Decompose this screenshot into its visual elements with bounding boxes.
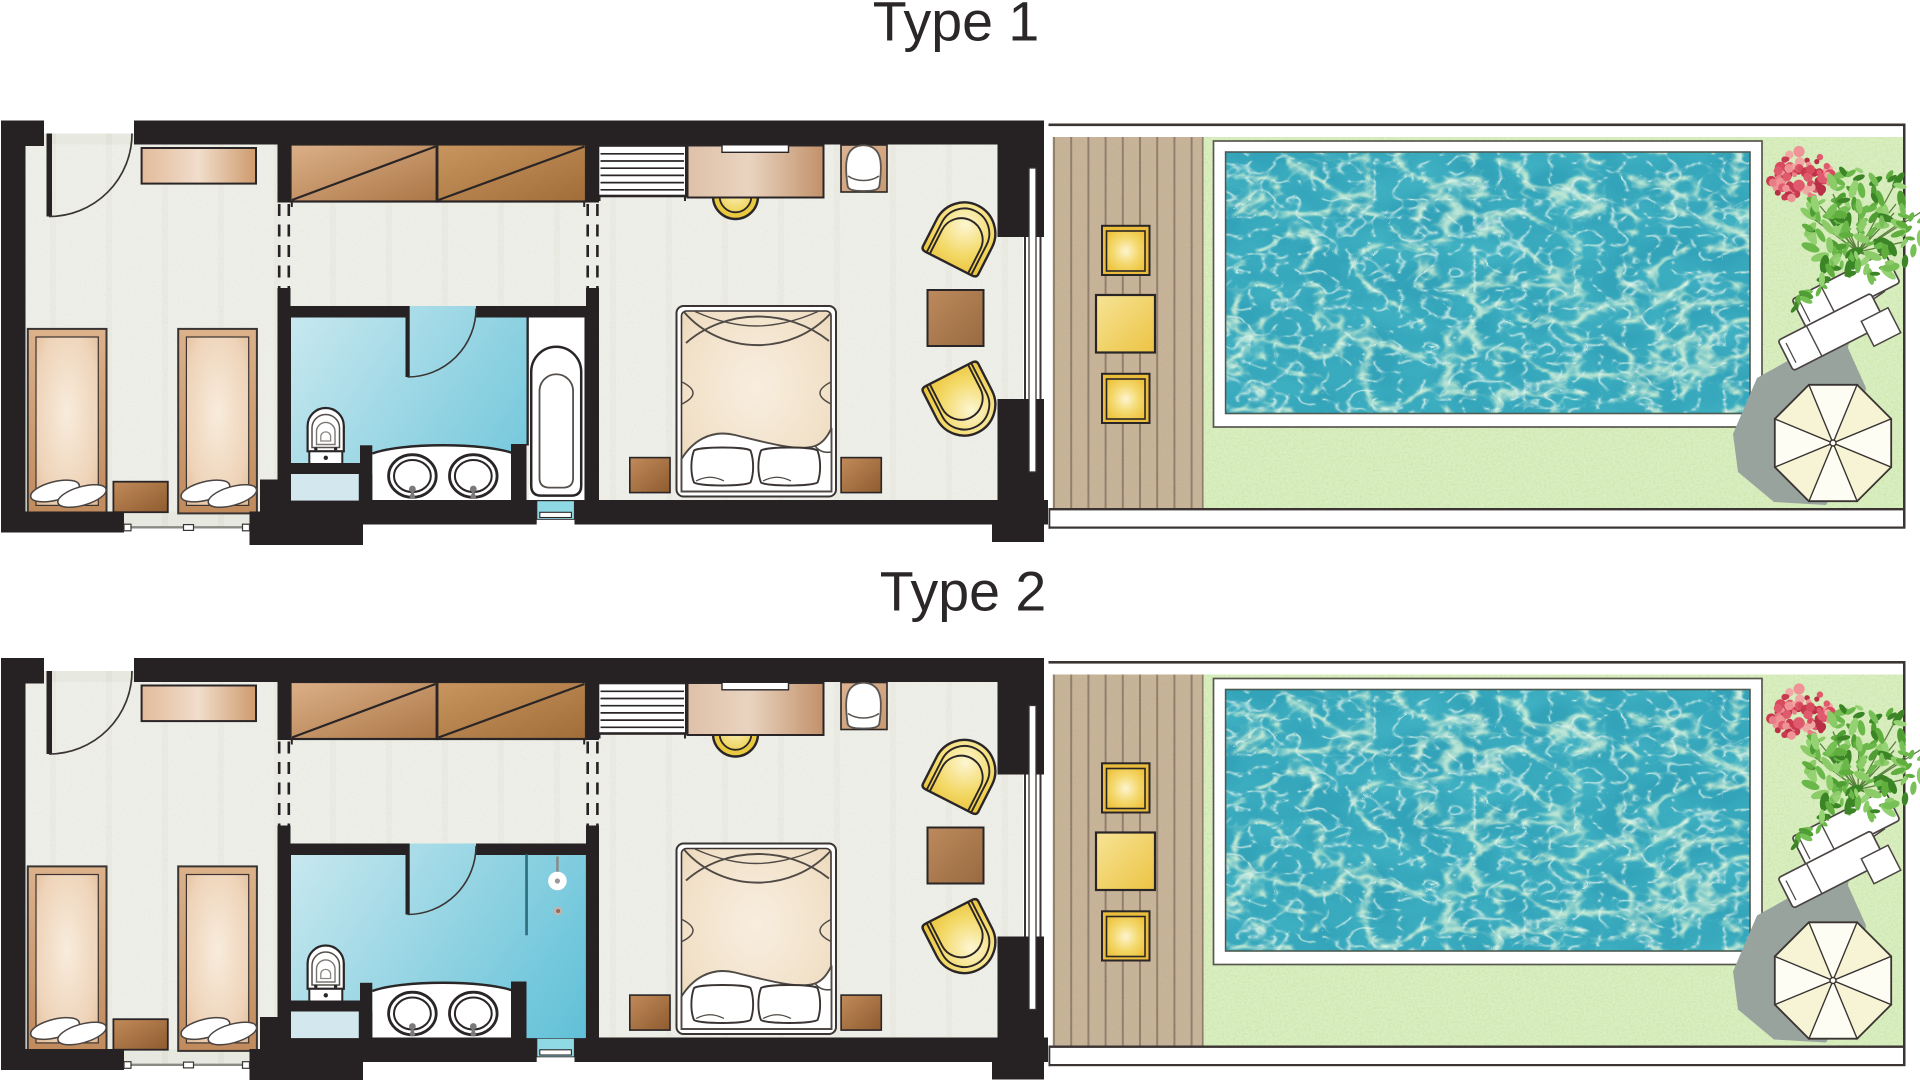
svg-text:Type 1: Type 1 xyxy=(873,0,1040,53)
svg-text:Type 2: Type 2 xyxy=(880,561,1047,623)
